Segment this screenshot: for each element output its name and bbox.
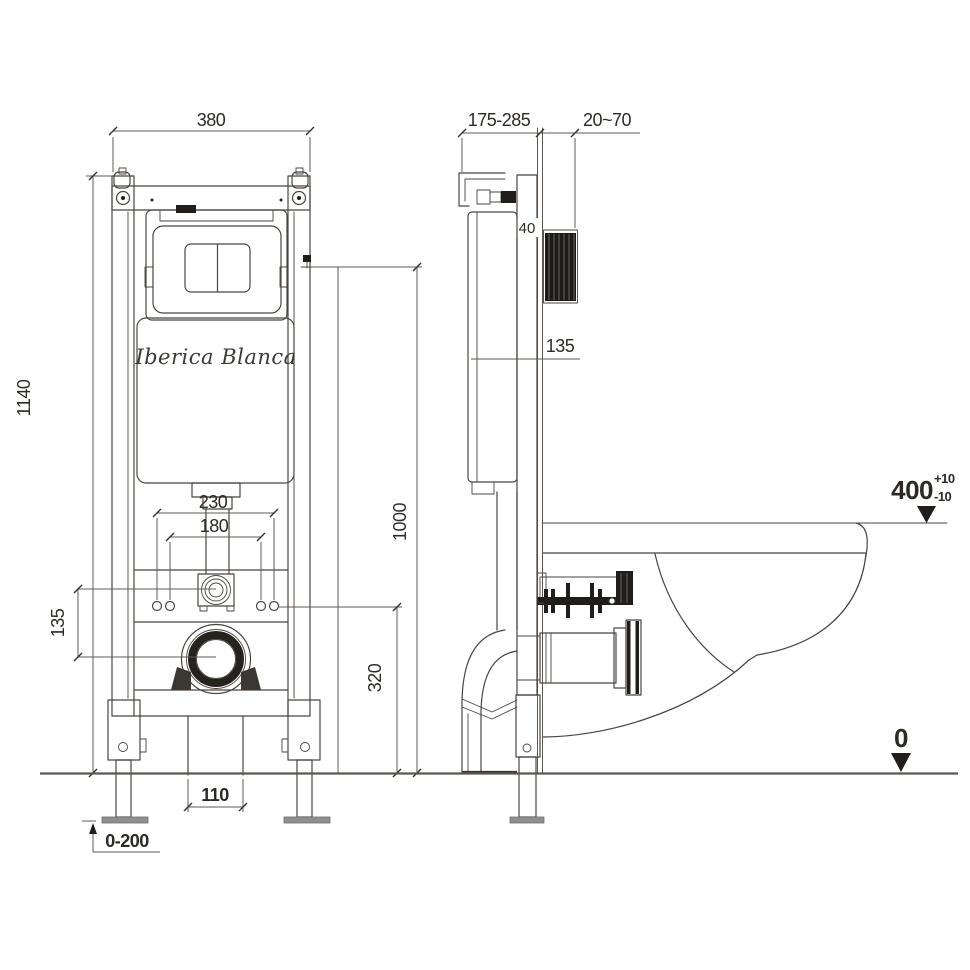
dim-plate-height-1000: 1000 xyxy=(311,263,422,777)
side-view: 40 xyxy=(458,110,955,823)
level-rim-label: 400 xyxy=(891,475,933,505)
dim-inlet-drain-label: 135 xyxy=(48,608,68,637)
dim-wall-20-70: 20~70 xyxy=(540,110,640,228)
brand-logo: Iberica Blanca xyxy=(134,345,296,369)
dim-depth-175-285: 175-285 xyxy=(458,110,544,172)
foot-left xyxy=(102,700,148,823)
foot-plate-side xyxy=(510,817,544,823)
drain-elbow xyxy=(462,630,517,773)
dim-bolt-inner-label: 180 xyxy=(200,516,229,536)
rod-cap xyxy=(616,571,633,605)
cistern-side xyxy=(468,212,517,630)
flush-plate-section xyxy=(545,233,576,301)
water-inlet-fitting xyxy=(198,574,234,611)
floor-level-marker-0: 0 xyxy=(891,723,911,772)
dim-foot-adjust-0-200: 0-200 xyxy=(82,821,160,852)
foot-plate-right xyxy=(284,817,330,823)
flush-plate-side xyxy=(544,230,578,303)
dim-bolt-inner-180: 180 xyxy=(166,516,265,600)
hanger-hook-right xyxy=(292,168,308,188)
dim-height-1140: 1140 xyxy=(14,172,112,777)
dim-drain-height-label: 320 xyxy=(365,663,385,692)
frame-side: 40 xyxy=(459,173,538,695)
fill-valve xyxy=(477,190,490,204)
hanger-hook-left xyxy=(114,168,130,188)
cistern-tank xyxy=(137,318,294,483)
dim-width-label: 380 xyxy=(197,110,226,130)
dim-drain-height-320: 320 xyxy=(278,603,402,777)
dim-drain-width-label: 110 xyxy=(201,785,229,805)
drain-bracket-left xyxy=(171,667,191,690)
wall-anchor-rod xyxy=(537,571,633,618)
foot-plate-left xyxy=(102,817,148,823)
installation-frame-diagram: Iberica Blanca xyxy=(0,0,970,970)
rim-level-marker-400: 400 +10 -10 xyxy=(891,471,955,523)
inlet-valve-marker xyxy=(301,255,313,268)
front-view: Iberica Blanca xyxy=(14,110,422,852)
level-rim-tol-plus: +10 xyxy=(934,471,955,486)
level-rim-tol-minus: -10 xyxy=(934,489,952,504)
plate-clip xyxy=(176,205,196,213)
dim-tank-label: 135 xyxy=(546,336,575,356)
dim-wall-label: 20~70 xyxy=(583,110,632,130)
screw-right xyxy=(293,192,306,205)
toilet-bowl xyxy=(542,523,947,737)
dim-width-380: 380 xyxy=(109,110,314,172)
flush-plate-front xyxy=(145,205,288,320)
dim-rail-depth-label: 40 xyxy=(519,220,536,237)
top-bracket xyxy=(459,173,505,206)
drain-outlet-front xyxy=(171,625,261,694)
dim-bolt-outer-230: 230 xyxy=(153,492,278,600)
frame-rail-left xyxy=(112,176,134,716)
frame-rail-side xyxy=(517,175,537,695)
tank-profile xyxy=(468,212,517,482)
drain-connector-side xyxy=(517,620,641,695)
dim-tank-135: 135 xyxy=(471,336,580,359)
dim-height-label: 1140 xyxy=(14,379,34,416)
valve-connector xyxy=(501,191,516,203)
screw-left xyxy=(117,192,130,205)
dim-depth-label: 175-285 xyxy=(468,110,531,130)
dim-drain-width-110: 110 xyxy=(184,779,247,812)
foot-right xyxy=(282,700,330,823)
dim-plate-height-label: 1000 xyxy=(390,502,410,541)
level-floor-label: 0 xyxy=(894,723,908,753)
foot-side xyxy=(510,695,544,823)
dim-bolt-outer-label: 230 xyxy=(199,492,228,512)
dim-foot-adjust-label: 0-200 xyxy=(105,831,149,851)
technical-drawing: Iberica Blanca xyxy=(0,0,970,970)
drain-bracket-right xyxy=(241,667,261,690)
cistern-front: Iberica Blanca xyxy=(134,318,296,483)
frame-top-beam xyxy=(112,186,310,210)
